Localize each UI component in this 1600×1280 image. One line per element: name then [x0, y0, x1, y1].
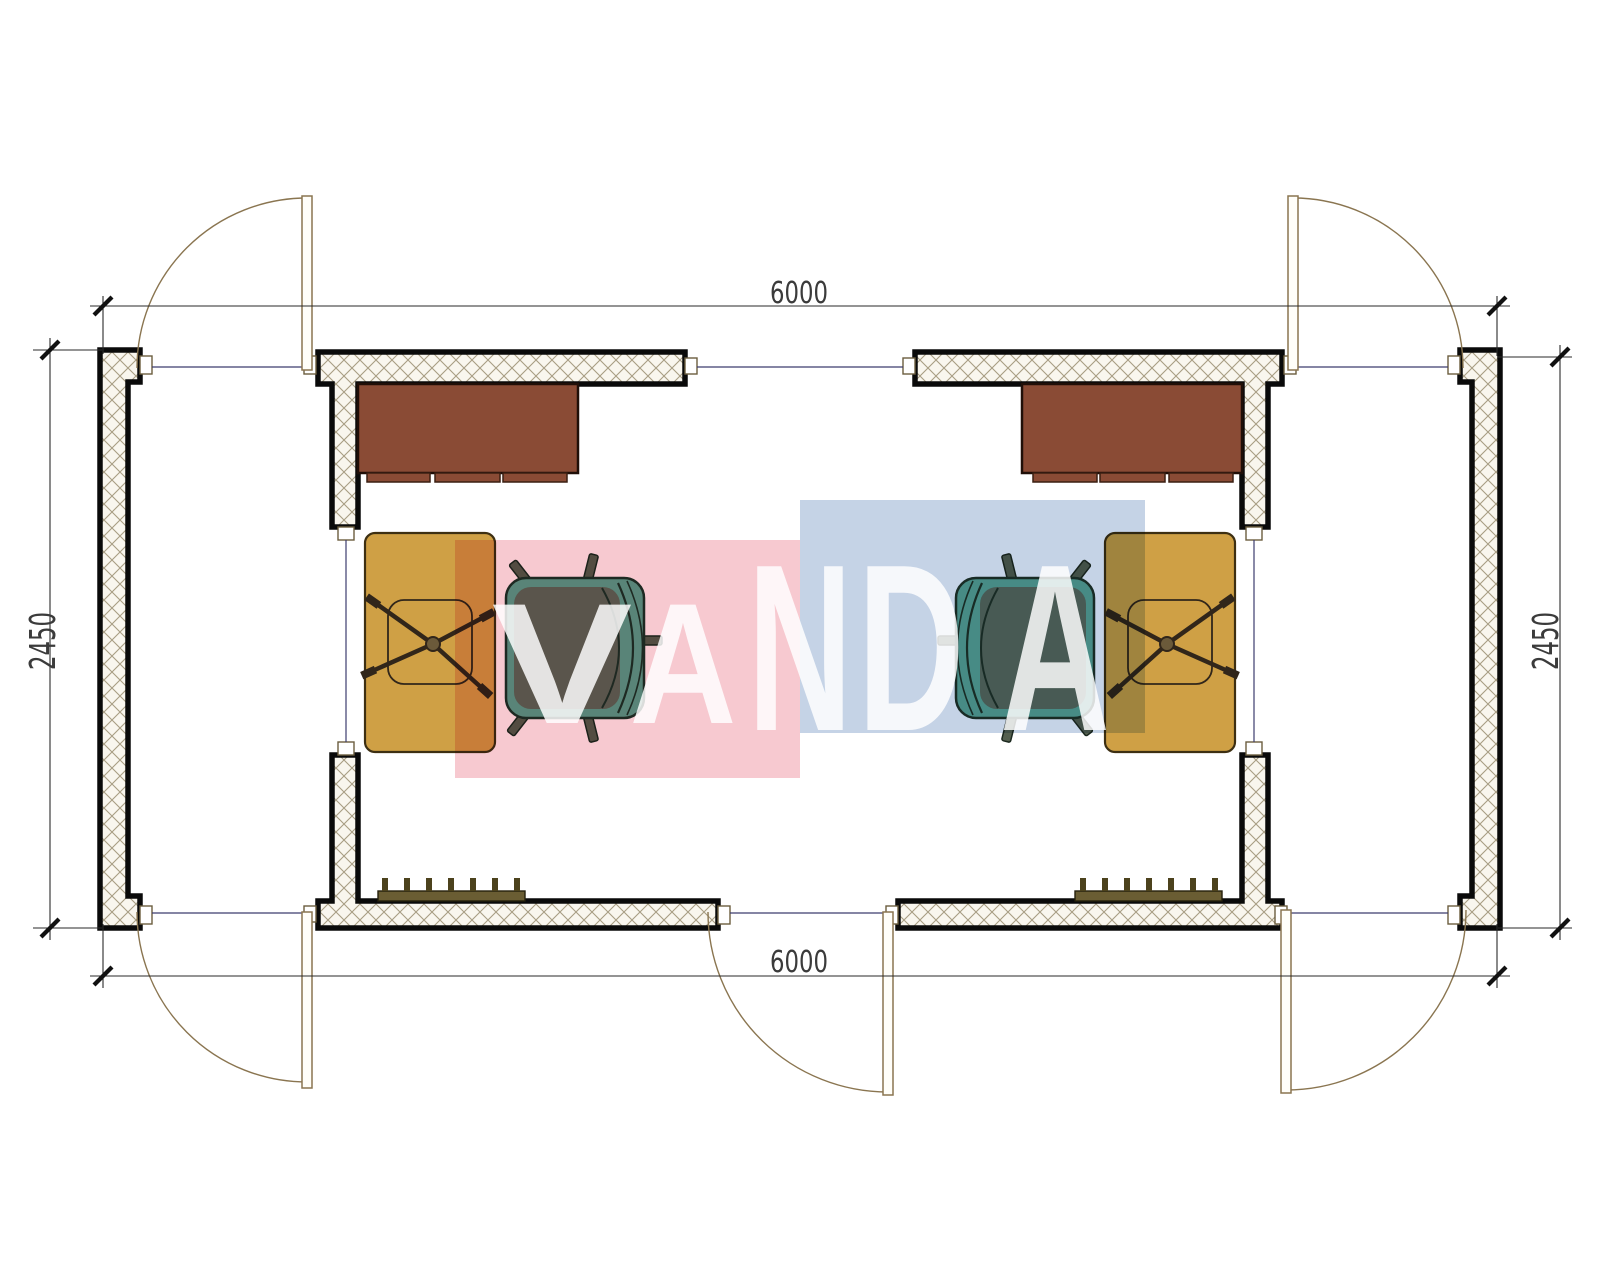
door-top-left — [137, 196, 312, 370]
desk-left — [358, 384, 578, 473]
door-bottom-right — [1281, 910, 1466, 1093]
door-frame-cap — [685, 358, 697, 374]
watermark: V A N D A — [455, 500, 1145, 781]
desk-left-drawers — [367, 473, 567, 482]
door-leaf — [302, 196, 312, 370]
dimension-label-left: 2450 — [23, 612, 64, 670]
desk-right-drawers — [1033, 473, 1233, 482]
desk-drawer — [1033, 473, 1097, 482]
door-frame-cap — [140, 906, 152, 924]
door-leaf — [302, 912, 312, 1088]
watermark-letter: V — [492, 568, 633, 760]
door-frame-cap — [903, 358, 915, 374]
watermark-letter: A — [1000, 516, 1110, 781]
radiator-right — [1075, 878, 1222, 901]
floor-plan-canvas: 6000 6000 2450 2450 V A N D A — [0, 0, 1600, 1280]
door-top-right — [1288, 196, 1463, 370]
watermark-letter: N — [748, 516, 853, 781]
watermark-letter: D — [858, 516, 965, 781]
wall-stub-cap — [1246, 742, 1262, 755]
dimension-label-right: 2450 — [1526, 612, 1567, 670]
wall-stub-cap — [338, 742, 354, 755]
wall-right-exterior — [1460, 350, 1500, 928]
door-bottom-middle — [708, 912, 893, 1095]
wall-stub-cap — [1246, 527, 1262, 540]
door-leaf — [1288, 196, 1298, 370]
dimension-label-top: 6000 — [770, 276, 828, 311]
desk-drawer — [1100, 473, 1165, 482]
radiator-left — [378, 878, 525, 901]
wall-left-exterior — [100, 350, 140, 928]
door-frame-cap — [140, 356, 152, 374]
watermark-letter: A — [630, 568, 737, 760]
floor-plan-screenshot: 6000 6000 2450 2450 V A N D A — [0, 0, 1600, 1280]
wall-stub-cap — [338, 527, 354, 540]
desk-drawer — [503, 473, 567, 482]
door-leaf — [883, 912, 893, 1095]
wall-bottom-left — [318, 755, 718, 928]
door-frame-cap — [1448, 906, 1460, 924]
door-frame-cap — [1448, 356, 1460, 374]
desk-drawer — [435, 473, 500, 482]
door-frame-cap — [718, 906, 730, 924]
door-bottom-left — [137, 912, 312, 1088]
desk-drawer — [367, 473, 430, 482]
dimension-label-bottom: 6000 — [770, 945, 828, 980]
desk-right — [1022, 384, 1242, 473]
door-leaf — [1281, 910, 1291, 1093]
desk-drawer — [1169, 473, 1233, 482]
